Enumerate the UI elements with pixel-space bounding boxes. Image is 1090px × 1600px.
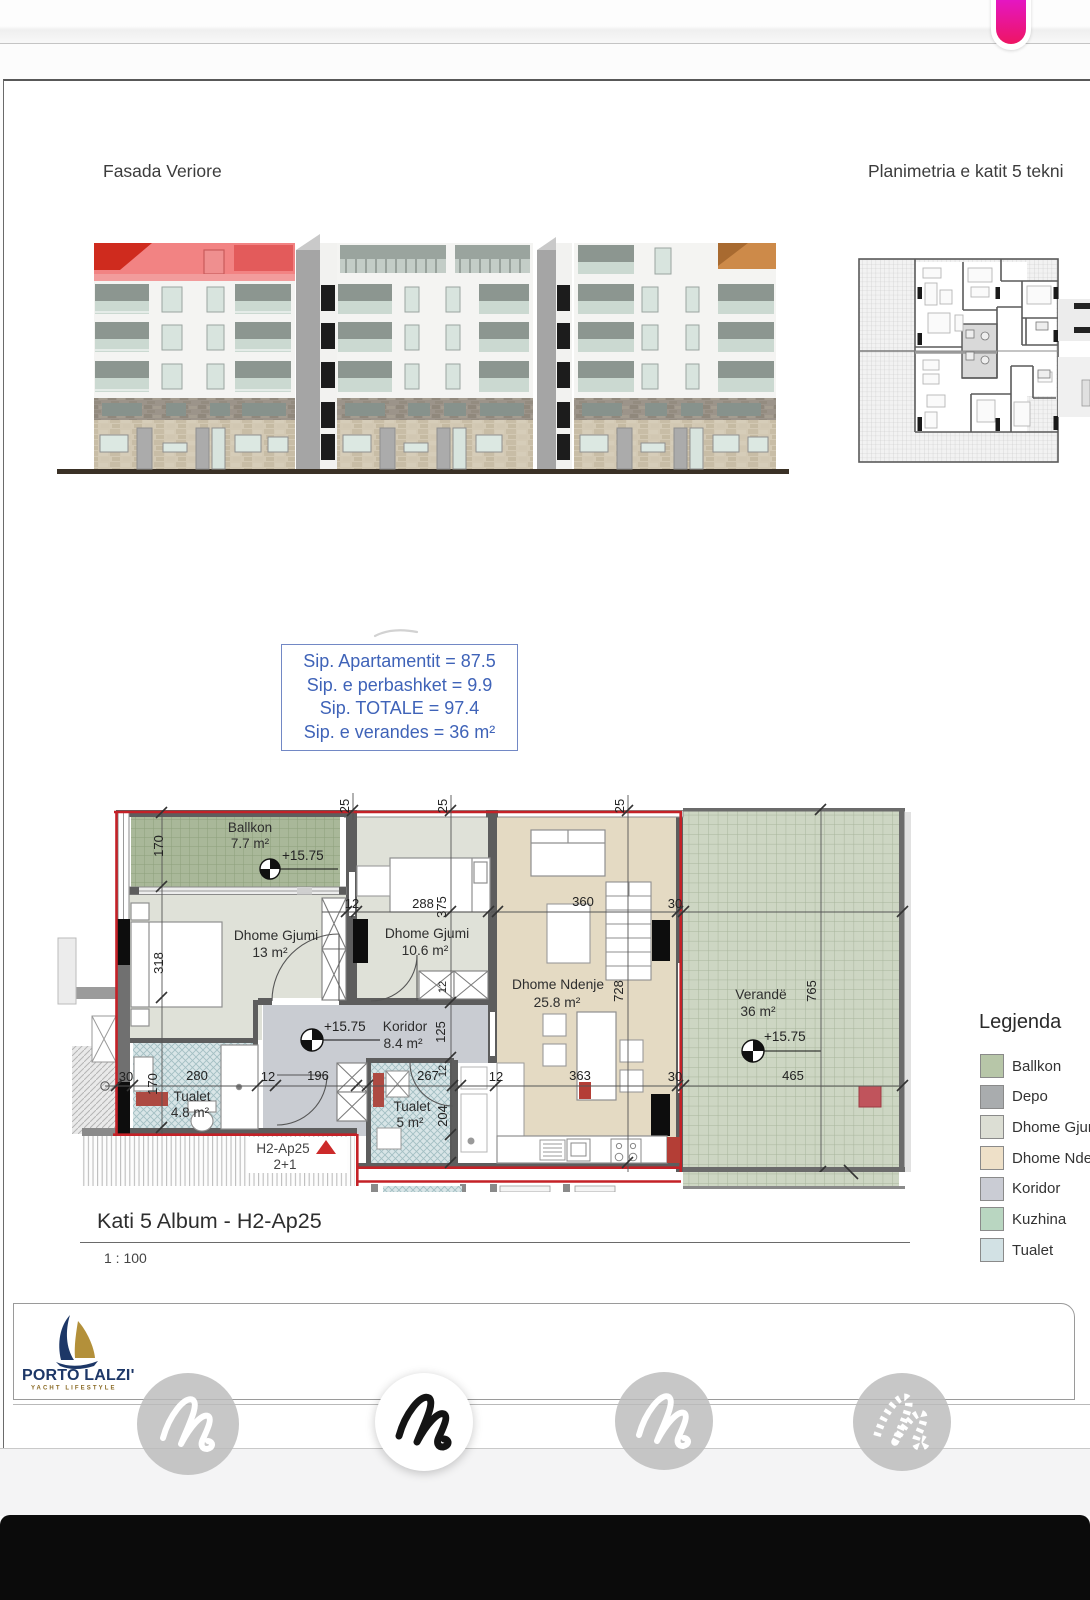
svg-text:375: 375 xyxy=(434,896,449,918)
svg-text:267: 267 xyxy=(417,1068,439,1083)
svg-text:Tualet: Tualet xyxy=(393,1099,430,1114)
svg-text:YACHT LIFESTYLE: YACHT LIFESTYLE xyxy=(31,1386,117,1392)
svg-text:H2-Ap25: H2-Ap25 xyxy=(256,1141,309,1156)
svg-text:196: 196 xyxy=(307,1068,329,1083)
svg-text:25: 25 xyxy=(337,799,352,813)
svg-text:12: 12 xyxy=(261,1069,275,1084)
svg-text:+15.75: +15.75 xyxy=(282,848,324,863)
svg-text:280: 280 xyxy=(186,1068,208,1083)
svg-text:360: 360 xyxy=(572,894,594,909)
svg-text:25: 25 xyxy=(435,799,450,813)
svg-text:PORTO LALZI': PORTO LALZI' xyxy=(22,1367,135,1384)
svg-text:Dhome Ndenje: Dhome Ndenje xyxy=(512,977,604,992)
svg-text:13 m²: 13 m² xyxy=(252,945,288,960)
svg-text:Dhome Gjumi: Dhome Gjumi xyxy=(385,926,469,941)
svg-text:7.7 m²: 7.7 m² xyxy=(231,836,270,851)
svg-text:8.4 m²: 8.4 m² xyxy=(383,1036,423,1051)
svg-text:465: 465 xyxy=(782,1068,804,1083)
svg-text:25: 25 xyxy=(612,799,627,813)
svg-text:12: 12 xyxy=(437,981,449,993)
svg-text:Verandë: Verandë xyxy=(735,987,787,1002)
svg-text:5 m²: 5 m² xyxy=(397,1115,425,1130)
svg-text:Koridor: Koridor xyxy=(383,1019,428,1034)
svg-text:4.8 m²: 4.8 m² xyxy=(171,1105,210,1120)
svg-text:30: 30 xyxy=(668,1069,682,1084)
svg-text:765: 765 xyxy=(804,980,819,1002)
svg-text:12: 12 xyxy=(345,896,359,911)
svg-text:25.8 m²: 25.8 m² xyxy=(534,995,581,1010)
svg-text:2+1: 2+1 xyxy=(274,1157,297,1172)
svg-text:170: 170 xyxy=(145,1073,160,1095)
svg-text:Ballkon: Ballkon xyxy=(228,820,272,835)
svg-text:Dhome Gjumi: Dhome Gjumi xyxy=(234,928,318,943)
svg-text:+15.75: +15.75 xyxy=(764,1029,806,1044)
svg-text:30: 30 xyxy=(119,1069,133,1084)
svg-text:288: 288 xyxy=(412,896,434,911)
svg-text:Tualet: Tualet xyxy=(173,1089,210,1104)
svg-text:+15.75: +15.75 xyxy=(324,1019,366,1034)
svg-text:125: 125 xyxy=(433,1021,448,1043)
svg-text:363: 363 xyxy=(569,1068,591,1083)
svg-text:318: 318 xyxy=(151,952,166,974)
svg-text:204: 204 xyxy=(435,1105,450,1127)
svg-text:170: 170 xyxy=(151,835,166,857)
svg-text:10.6 m²: 10.6 m² xyxy=(402,943,449,958)
svg-text:12: 12 xyxy=(437,1065,449,1077)
svg-text:12: 12 xyxy=(489,1069,503,1084)
svg-text:728: 728 xyxy=(611,980,626,1002)
svg-text:30: 30 xyxy=(668,896,682,911)
svg-text:36 m²: 36 m² xyxy=(740,1004,776,1019)
